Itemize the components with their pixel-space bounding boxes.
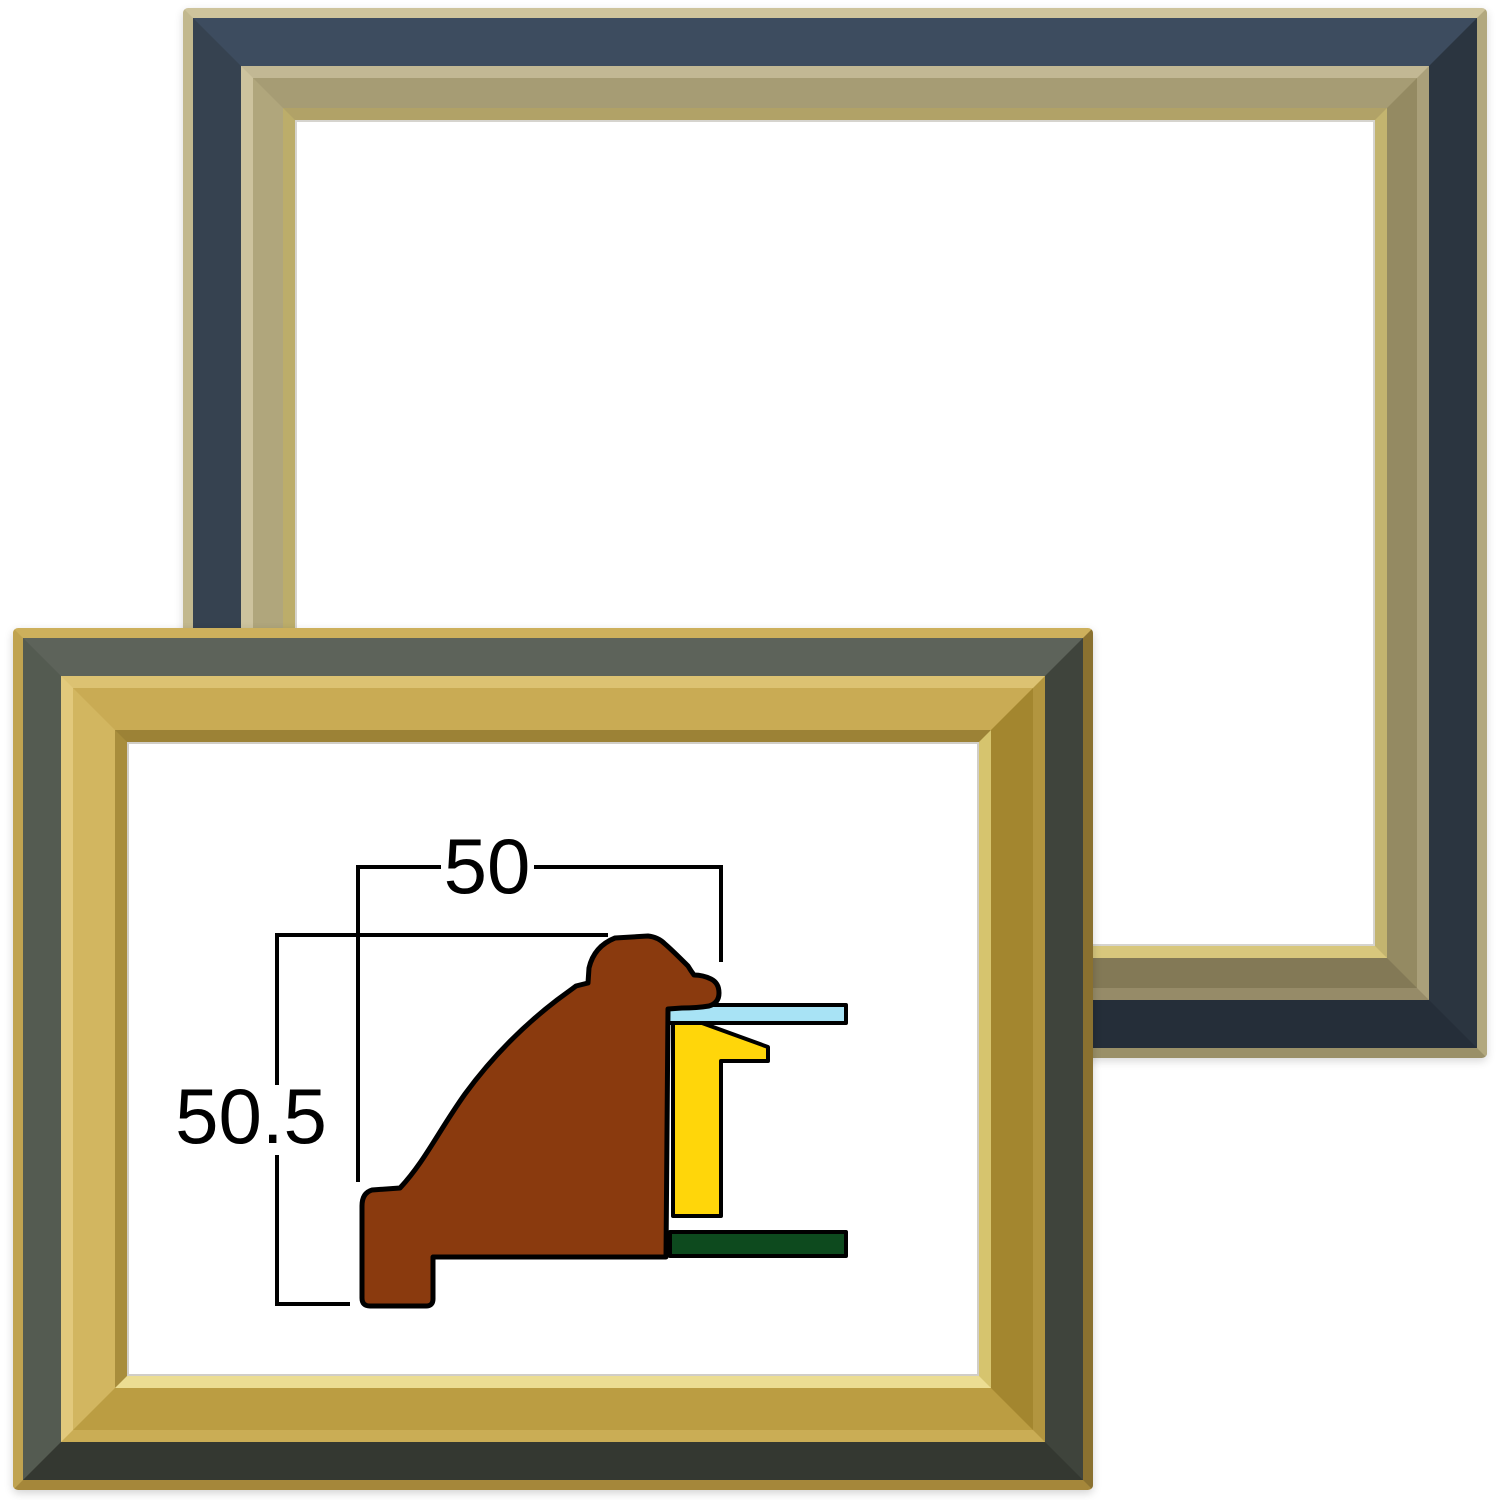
front-frame-window bbox=[127, 742, 979, 1376]
front-frame-moulding-scoop bbox=[73, 688, 1033, 1430]
front-frame-outer-edge bbox=[13, 628, 1093, 1490]
front-frame-inner-lip bbox=[115, 730, 991, 1388]
front-frame bbox=[13, 628, 1093, 1490]
front-frame-charcoal-band bbox=[23, 638, 1083, 1480]
front-frame-moulding-ridge bbox=[61, 676, 1045, 1442]
